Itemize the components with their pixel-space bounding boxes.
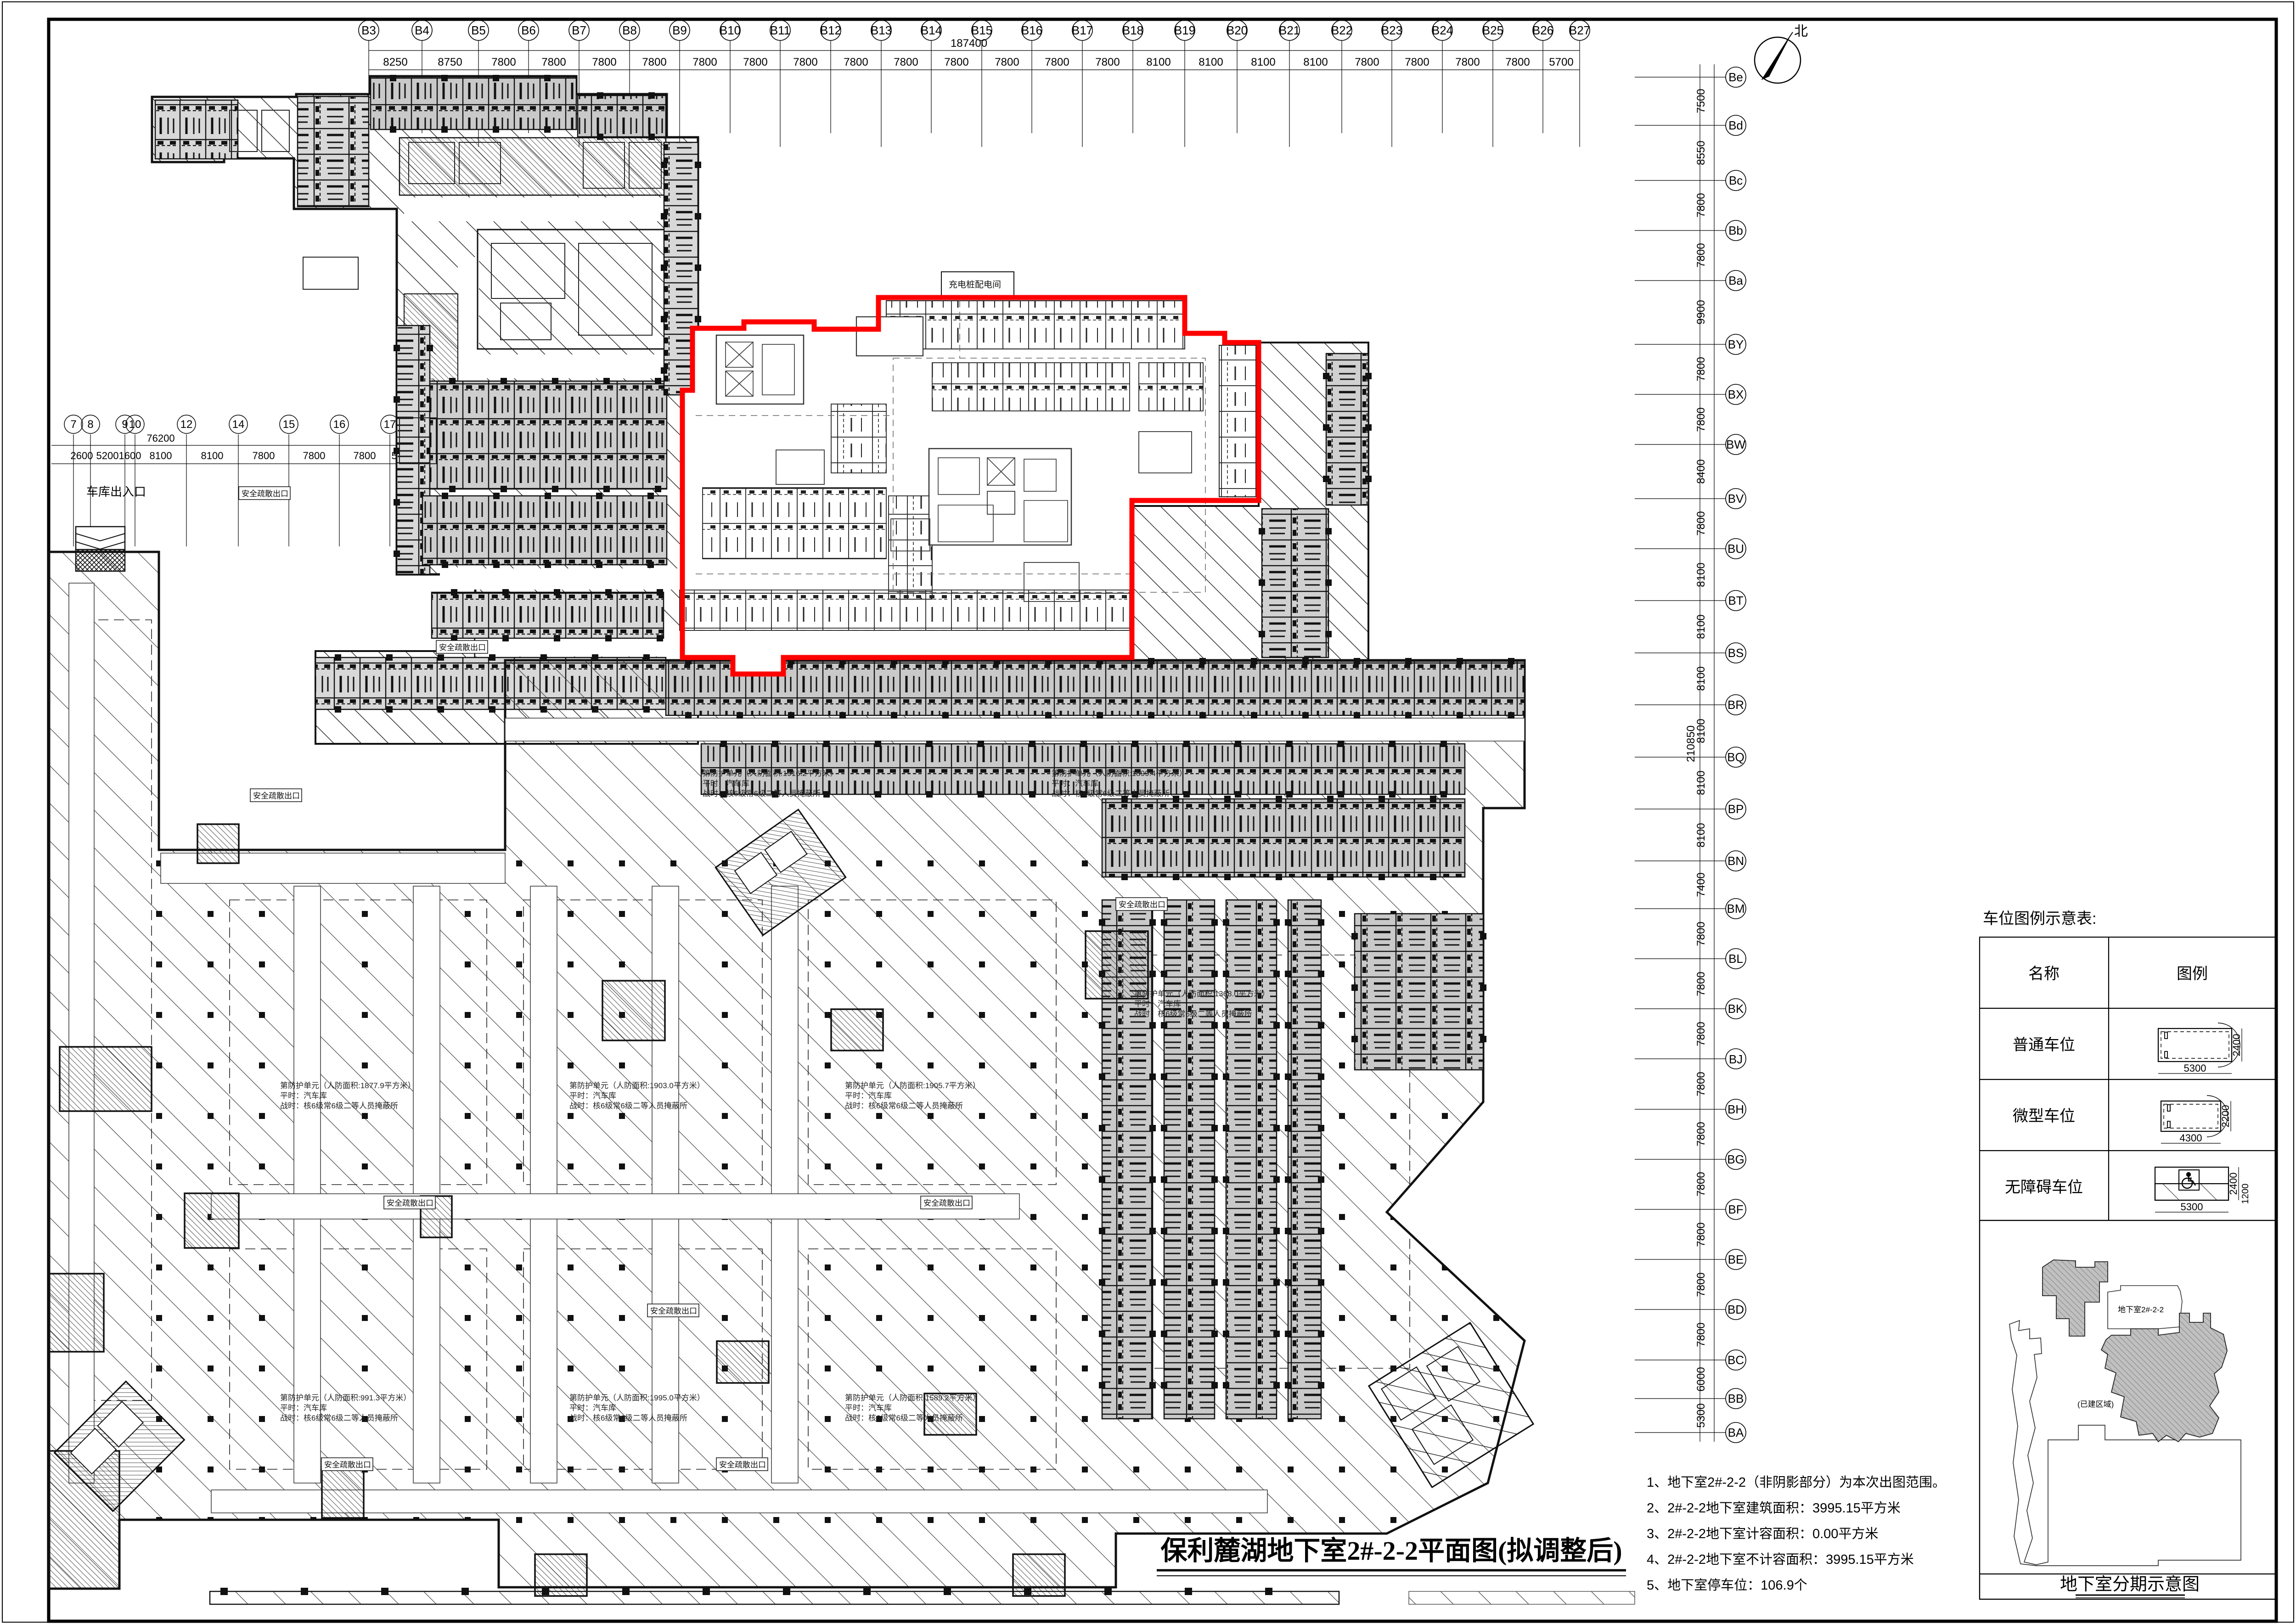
- svg-text:Bd: Bd: [1728, 118, 1743, 132]
- svg-text:2200: 2200: [2220, 1105, 2231, 1128]
- svg-text:第防护单元（人防面积:1899.4平方米）: 第防护单元（人防面积:1899.4平方米）: [1052, 769, 1187, 778]
- svg-text:Bb: Bb: [1728, 224, 1743, 237]
- svg-text:B13: B13: [871, 23, 892, 37]
- svg-text:B3: B3: [361, 23, 376, 37]
- svg-text:8100: 8100: [1695, 666, 1707, 691]
- svg-text:Bc: Bc: [1729, 174, 1743, 187]
- svg-text:7800: 7800: [894, 56, 918, 68]
- svg-text:7800: 7800: [354, 450, 376, 461]
- svg-text:5200: 5200: [96, 450, 119, 461]
- svg-text:8100: 8100: [1251, 56, 1275, 68]
- svg-text:地下室分期示意图: 地下室分期示意图: [2060, 1575, 2200, 1594]
- svg-text:平时：汽车库: 平时：汽车库: [569, 1091, 616, 1100]
- svg-text:7800: 7800: [1695, 972, 1707, 996]
- svg-text:战时：核6级常6级二等人员掩蔽所: 战时：核6级常6级二等人员掩蔽所: [845, 1414, 963, 1422]
- svg-text:10: 10: [129, 418, 141, 431]
- svg-text:战时：核6级常6级二等人员掩蔽所: 战时：核6级常6级二等人员掩蔽所: [280, 1414, 398, 1422]
- svg-text:BD: BD: [1728, 1303, 1744, 1316]
- svg-text:8100: 8100: [1695, 770, 1707, 795]
- svg-text:7800: 7800: [1505, 56, 1530, 68]
- svg-text:5700: 5700: [1549, 56, 1573, 68]
- svg-text:5300: 5300: [1695, 1403, 1707, 1427]
- svg-text:6000: 6000: [1695, 1367, 1707, 1391]
- svg-text:8100: 8100: [1695, 562, 1707, 587]
- svg-text:B12: B12: [820, 23, 841, 37]
- svg-text:平时：汽车库: 平时：汽车库: [280, 1404, 327, 1412]
- svg-text:7800: 7800: [491, 56, 516, 68]
- svg-text:(已建区域): (已建区域): [2077, 1400, 2114, 1409]
- svg-text:BN: BN: [1728, 854, 1744, 868]
- svg-text:2400: 2400: [2228, 1173, 2239, 1195]
- svg-text:14: 14: [232, 418, 245, 431]
- svg-text:安全疏散出口: 安全疏散出口: [650, 1307, 697, 1315]
- svg-text:17: 17: [384, 418, 396, 431]
- svg-text:76200: 76200: [146, 433, 174, 444]
- svg-text:7400: 7400: [1695, 872, 1707, 897]
- svg-text:8100: 8100: [1303, 56, 1328, 68]
- svg-text:B16: B16: [1021, 23, 1042, 37]
- svg-text:战时：核6级常6级二等人员掩蔽所: 战时：核6级常6级二等人员掩蔽所: [1052, 789, 1170, 798]
- svg-text:7800: 7800: [1405, 56, 1429, 68]
- svg-text:普通车位: 普通车位: [2013, 1036, 2075, 1054]
- svg-text:7800: 7800: [1695, 1072, 1707, 1096]
- svg-text:210850: 210850: [1685, 725, 1697, 762]
- svg-text:充电桩配电间: 充电桩配电间: [949, 280, 1001, 290]
- svg-text:7800: 7800: [1695, 357, 1707, 381]
- svg-text:4300: 4300: [2180, 1132, 2202, 1144]
- svg-text:7800: 7800: [1695, 1022, 1707, 1046]
- svg-text:B19: B19: [1174, 23, 1195, 37]
- svg-text:BL: BL: [1728, 952, 1743, 966]
- svg-text:8100: 8100: [150, 450, 172, 461]
- svg-text:车库出入口: 车库出入口: [86, 485, 146, 499]
- svg-text:BX: BX: [1728, 388, 1744, 401]
- svg-text:BB: BB: [1728, 1392, 1744, 1405]
- svg-text:7800: 7800: [642, 56, 666, 68]
- svg-text:8100: 8100: [201, 450, 224, 461]
- svg-text:BH: BH: [1728, 1102, 1744, 1116]
- svg-text:5300: 5300: [2181, 1201, 2203, 1213]
- svg-text:BF: BF: [1728, 1203, 1743, 1216]
- svg-text:BS: BS: [1728, 646, 1744, 660]
- svg-text:8: 8: [87, 418, 93, 431]
- svg-text:战时：核6级常6级二等人员掩蔽所: 战时：核6级常6级二等人员掩蔽所: [569, 1101, 687, 1110]
- svg-text:BA: BA: [1728, 1426, 1744, 1439]
- svg-text:B27: B27: [1569, 23, 1590, 37]
- svg-text:战时：核6级常6级二等人员掩蔽所: 战时：核6级常6级二等人员掩蔽所: [569, 1414, 687, 1422]
- svg-text:BV: BV: [1728, 492, 1744, 506]
- svg-text:战时：核6级常6级二等人员掩蔽所: 战时：核6级常6级二等人员掩蔽所: [280, 1101, 398, 1110]
- svg-text:BR: BR: [1728, 698, 1744, 712]
- svg-text:安全疏散出口: 安全疏散出口: [1119, 900, 1165, 909]
- svg-text:B7: B7: [572, 23, 586, 37]
- svg-text:1600: 1600: [119, 450, 141, 461]
- svg-text:2600: 2600: [71, 450, 93, 461]
- svg-text:第防护单元（人防面积:1995.0平方米）: 第防护单元（人防面积:1995.0平方米）: [569, 1394, 705, 1402]
- svg-text:战时：核6级常6级二等人员掩蔽所: 战时：核6级常6级二等人员掩蔽所: [1134, 1010, 1252, 1018]
- svg-text:BE: BE: [1728, 1253, 1744, 1266]
- svg-text:第防护单元（人防面积:1916.2平方米）: 第防护单元（人防面积:1916.2平方米）: [703, 769, 838, 778]
- svg-text:BP: BP: [1728, 802, 1744, 816]
- svg-text:16: 16: [333, 418, 346, 431]
- svg-text:Ba: Ba: [1728, 274, 1743, 287]
- svg-text:7800: 7800: [1695, 1222, 1707, 1247]
- svg-text:187400: 187400: [951, 37, 987, 50]
- svg-text:1200: 1200: [2240, 1184, 2251, 1204]
- svg-text:7800: 7800: [944, 56, 968, 68]
- svg-text:BK: BK: [1728, 1002, 1744, 1016]
- svg-text:B9: B9: [672, 23, 687, 37]
- svg-text:B18: B18: [1122, 23, 1143, 37]
- svg-text:BW: BW: [1726, 438, 1745, 451]
- svg-text:B17: B17: [1072, 23, 1093, 37]
- svg-text:BY: BY: [1728, 337, 1744, 351]
- svg-text:B5: B5: [471, 23, 486, 37]
- svg-text:7500: 7500: [1695, 89, 1707, 113]
- svg-text:4、2#-2-2地下室不计容面积：3995.15平方米: 4、2#-2-2地下室不计容面积：3995.15平方米: [1647, 1552, 1914, 1567]
- svg-text:第防护单元（人防面积:1589.2平方米）: 第防护单元（人防面积:1589.2平方米）: [845, 1394, 980, 1402]
- svg-text:5300: 5300: [2184, 1062, 2206, 1074]
- svg-text:安全疏散出口: 安全疏散出口: [253, 792, 300, 800]
- svg-text:7800: 7800: [1695, 193, 1707, 217]
- svg-text:第防护单元（人防面积:1368.0平方米）: 第防护单元（人防面积:1368.0平方米）: [1134, 989, 1270, 998]
- svg-text:7800: 7800: [1095, 56, 1120, 68]
- svg-text:BJ: BJ: [1729, 1052, 1743, 1066]
- svg-text:B14: B14: [921, 23, 942, 37]
- svg-text:7800: 7800: [692, 56, 717, 68]
- svg-text:BU: BU: [1728, 542, 1744, 556]
- svg-text:7800: 7800: [1695, 407, 1707, 432]
- svg-text:车位图例示意表:: 车位图例示意表:: [1983, 910, 2096, 927]
- svg-text:B4: B4: [415, 23, 429, 37]
- svg-text:B20: B20: [1227, 23, 1248, 37]
- svg-text:7800: 7800: [1695, 1322, 1707, 1347]
- svg-text:图例: 图例: [2177, 965, 2208, 983]
- svg-text:BC: BC: [1728, 1353, 1744, 1367]
- svg-text:平时：汽车库: 平时：汽车库: [1134, 1000, 1181, 1008]
- svg-text:5、地下室停车位：106.9个: 5、地下室停车位：106.9个: [1647, 1578, 1807, 1593]
- svg-text:8400: 8400: [1695, 459, 1707, 483]
- svg-text:B6: B6: [521, 23, 536, 37]
- svg-text:9900: 9900: [1695, 300, 1707, 324]
- svg-text:7800: 7800: [1455, 56, 1480, 68]
- svg-text:B23: B23: [1381, 23, 1402, 37]
- svg-text:BQ: BQ: [1727, 750, 1745, 764]
- svg-text:Be: Be: [1728, 70, 1743, 84]
- svg-text:7800: 7800: [1695, 1272, 1707, 1297]
- svg-text:安全疏散出口: 安全疏散出口: [387, 1199, 433, 1208]
- svg-text:2、2#-2-2地下室建筑面积：3995.15平方米: 2、2#-2-2地下室建筑面积：3995.15平方米: [1647, 1500, 1901, 1516]
- svg-text:8100: 8100: [1199, 56, 1223, 68]
- svg-text:无障碍车位: 无障碍车位: [2005, 1179, 2083, 1196]
- svg-text:8100: 8100: [1695, 823, 1707, 847]
- svg-text:平时：汽车库: 平时：汽车库: [845, 1404, 892, 1412]
- svg-text:B25: B25: [1482, 23, 1503, 37]
- svg-text:7800: 7800: [1045, 56, 1069, 68]
- svg-text:7800: 7800: [995, 56, 1019, 68]
- svg-text:安全疏散出口: 安全疏散出口: [324, 1461, 371, 1469]
- svg-text:7800: 7800: [1695, 1122, 1707, 1146]
- svg-text:7800: 7800: [541, 56, 566, 68]
- svg-text:第防护单元（人防面积:1905.7平方米）: 第防护单元（人防面积:1905.7平方米）: [845, 1081, 980, 1090]
- svg-text:7800: 7800: [1695, 511, 1707, 535]
- svg-text:战时：核6级常6级二等人员掩蔽所: 战时：核6级常6级二等人员掩蔽所: [845, 1101, 963, 1110]
- svg-text:8250: 8250: [383, 56, 407, 68]
- svg-text:8100: 8100: [1146, 56, 1171, 68]
- svg-text:微型车位: 微型车位: [2013, 1107, 2075, 1125]
- svg-text:8750: 8750: [438, 56, 462, 68]
- svg-text:7800: 7800: [592, 56, 616, 68]
- svg-text:平时：汽车库: 平时：汽车库: [280, 1091, 327, 1100]
- svg-text:1、地下室2#-2-2（非阴影部分）为本次出图范围。: 1、地下室2#-2-2（非阴影部分）为本次出图范围。: [1647, 1475, 1946, 1490]
- svg-text:BG: BG: [1727, 1152, 1745, 1166]
- svg-text:名称: 名称: [2028, 965, 2060, 983]
- svg-text:平时：汽车库: 平时：汽车库: [703, 779, 749, 788]
- svg-text:安全疏散出口: 安全疏散出口: [439, 643, 486, 652]
- svg-text:7800: 7800: [1695, 243, 1707, 267]
- svg-text:8550: 8550: [1695, 140, 1707, 165]
- svg-text:7: 7: [70, 418, 76, 431]
- svg-text:第防护单元（人防面积:1903.0平方米）: 第防护单元（人防面积:1903.0平方米）: [569, 1081, 705, 1090]
- svg-text:第防护单元（人防面积:1877.9平方米）: 第防护单元（人防面积:1877.9平方米）: [280, 1081, 416, 1090]
- svg-text:B21: B21: [1279, 23, 1300, 37]
- svg-text:B11: B11: [770, 23, 790, 37]
- svg-text:地下室2#-2-2: 地下室2#-2-2: [2118, 1305, 2164, 1314]
- svg-text:第防护单元（人防面积:991.3平方米）: 第防护单元（人防面积:991.3平方米）: [280, 1394, 411, 1402]
- svg-text:战时：核6级常6级二等人员掩蔽所: 战时：核6级常6级二等人员掩蔽所: [703, 789, 821, 798]
- svg-text:安全疏散出口: 安全疏散出口: [719, 1461, 766, 1469]
- svg-text:8100: 8100: [1695, 614, 1707, 639]
- svg-text:7800: 7800: [1355, 56, 1379, 68]
- svg-text:B26: B26: [1532, 23, 1553, 37]
- svg-text:平时：汽车库: 平时：汽车库: [845, 1091, 892, 1100]
- svg-text:7800: 7800: [303, 450, 326, 461]
- svg-text:B8: B8: [622, 23, 637, 37]
- svg-text:B10: B10: [720, 23, 741, 37]
- svg-text:BM: BM: [1727, 902, 1745, 916]
- svg-text:3、2#-2-2地下室计容面积：0.00平方米: 3、2#-2-2地下室计容面积：0.00平方米: [1647, 1526, 1878, 1541]
- svg-text:B22: B22: [1331, 23, 1352, 37]
- svg-text:平时：汽车库: 平时：汽车库: [569, 1404, 616, 1412]
- svg-text:2400: 2400: [2231, 1034, 2242, 1056]
- svg-text:BT: BT: [1728, 594, 1743, 607]
- svg-text:安全疏散出口: 安全疏散出口: [242, 489, 288, 498]
- svg-text:7800: 7800: [793, 56, 817, 68]
- svg-text:7800: 7800: [253, 450, 275, 461]
- svg-text:北: 北: [1794, 24, 1808, 39]
- svg-text:平时：汽车库: 平时：汽车库: [1052, 779, 1098, 788]
- svg-text:7800: 7800: [743, 56, 767, 68]
- svg-text:安全疏散出口: 安全疏散出口: [923, 1199, 970, 1208]
- svg-text:15: 15: [283, 418, 295, 431]
- svg-text:7800: 7800: [844, 56, 868, 68]
- svg-text:7800: 7800: [1695, 1172, 1707, 1196]
- svg-text:7800: 7800: [1695, 922, 1707, 946]
- svg-text:B24: B24: [1432, 23, 1453, 37]
- svg-text:保利麓湖地下室2#-2-2平面图(拟调整后): 保利麓湖地下室2#-2-2平面图(拟调整后): [1160, 1536, 1622, 1566]
- svg-text:B15: B15: [971, 23, 992, 37]
- svg-text:12: 12: [180, 418, 193, 431]
